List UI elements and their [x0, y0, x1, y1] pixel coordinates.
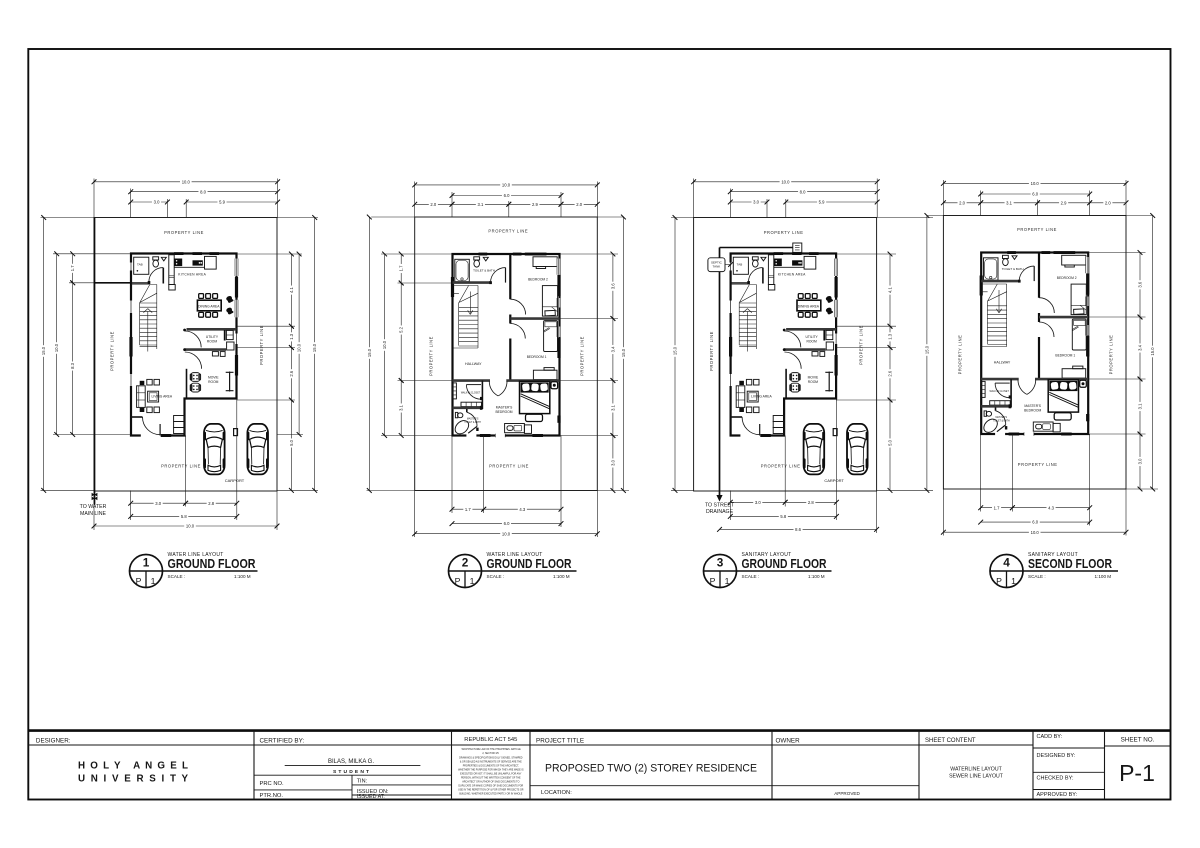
svg-text:PROPOSED TWO (2) STOREY RESIDE: PROPOSED TWO (2) STOREY RESIDENCE [545, 763, 757, 775]
svg-text:TO STREET: TO STREET [705, 502, 735, 508]
svg-text:8.6: 8.6 [795, 527, 801, 532]
svg-text:CERTIFIED BY:: CERTIFIED BY: [260, 737, 305, 744]
svg-text:6.0: 6.0 [1032, 520, 1038, 525]
svg-text:2.9: 2.9 [532, 202, 538, 207]
svg-text:1.7: 1.7 [994, 505, 1000, 510]
svg-text:SECOND FLOOR: SECOND FLOOR [1028, 557, 1112, 571]
svg-text:2, SECTION 25:: 2, SECTION 25: [482, 753, 499, 755]
svg-text:& OR SEALED AS INSTRUMENTS OF: & OR SEALED AS INSTRUMENTS OF SERVICE AR… [460, 760, 522, 763]
svg-text:ISSUED AT:: ISSUED AT: [357, 794, 385, 800]
svg-text:PERSON, WITHOUT THE WRITTEN CO: PERSON, WITHOUT THE WRITTEN CONSENT OF T… [461, 778, 521, 780]
svg-text:2.9: 2.9 [1061, 200, 1067, 205]
svg-text:CHECKED BY:: CHECKED BY: [1037, 775, 1074, 781]
svg-text:WATERLINE LAYOUT: WATERLINE LAYOUT [950, 766, 1002, 772]
svg-text:3.6: 3.6 [610, 283, 615, 289]
svg-text:15.0: 15.0 [621, 348, 626, 357]
svg-text:REPUBLIC ACT 545: REPUBLIC ACT 545 [464, 737, 517, 743]
svg-text:8.3: 8.3 [70, 362, 75, 368]
svg-text:2.0: 2.0 [1105, 200, 1111, 205]
svg-text:OWNER: OWNER [776, 737, 801, 744]
svg-text:5.8: 5.8 [181, 514, 187, 519]
svg-text:8.0: 8.0 [800, 189, 806, 194]
svg-text:15.0: 15.0 [41, 346, 46, 355]
svg-text:TO WATER: TO WATER [80, 504, 107, 510]
svg-text:4.1: 4.1 [289, 287, 294, 293]
svg-text:3.0: 3.0 [1138, 458, 1143, 464]
svg-text:5.8: 5.8 [780, 514, 786, 519]
svg-text:15.0: 15.0 [1150, 347, 1155, 356]
svg-text:1.3: 1.3 [289, 333, 294, 339]
svg-text:5.9: 5.9 [819, 200, 825, 205]
svg-text:4.1: 4.1 [888, 287, 893, 293]
svg-text:15.0: 15.0 [312, 343, 317, 352]
svg-text:WHETHER THE PURPOSE FOR WHICH: WHETHER THE PURPOSE FOR WHICH THEY ARE M… [458, 768, 524, 771]
svg-text:8.0: 8.0 [200, 189, 206, 194]
svg-text:6.0: 6.0 [1032, 192, 1038, 197]
svg-text:5.9: 5.9 [219, 200, 225, 205]
svg-text:3.1: 3.1 [399, 404, 404, 410]
svg-text:5.2: 5.2 [399, 326, 404, 332]
svg-text:BILAS, MILKA G.: BILAS, MILKA G. [328, 759, 374, 765]
svg-text:3: 3 [717, 556, 724, 570]
svg-text:4.3: 4.3 [1048, 505, 1054, 510]
svg-text:DESIGNED BY:: DESIGNED BY: [1037, 753, 1076, 759]
svg-text:SHEET NO.: SHEET NO. [1121, 737, 1155, 744]
svg-text:BUILDING, WHETHER EXECUTED PAR: BUILDING, WHETHER EXECUTED PARTLY OR IN … [459, 793, 522, 796]
svg-text:PROJECT TITLE: PROJECT TITLE [536, 737, 584, 744]
svg-text:15.0: 15.0 [673, 346, 678, 355]
svg-text:15.0: 15.0 [367, 348, 372, 357]
svg-text:4: 4 [1003, 556, 1010, 570]
svg-text:3.1: 3.1 [1006, 200, 1012, 205]
svg-text:H O L Y A N G E L: H O L Y A N G E L [78, 761, 188, 772]
svg-text:1.7: 1.7 [70, 265, 75, 271]
svg-text:PTR.NO.: PTR.NO. [260, 793, 284, 799]
svg-text:DUPLICATE OR MAKE COPIES OF SA: DUPLICATE OR MAKE COPIES OF SAID DOCUMEN… [458, 785, 523, 788]
svg-text:3.0: 3.0 [755, 500, 761, 505]
svg-text:GROUND FLOOR: GROUND FLOOR [742, 557, 827, 571]
svg-text:GROUND FLOOR: GROUND FLOOR [487, 557, 572, 571]
svg-text:3.0: 3.0 [154, 200, 160, 205]
svg-text:10.0: 10.0 [781, 179, 790, 184]
svg-text:3.1: 3.1 [610, 404, 615, 410]
svg-text:DRAINAGE: DRAINAGE [706, 509, 734, 515]
svg-text:2.8: 2.8 [208, 501, 214, 506]
svg-text:6.0: 6.0 [504, 521, 510, 526]
svg-text:LOCATION:: LOCATION: [541, 790, 572, 796]
svg-text:MAIN LINE: MAIN LINE [80, 511, 106, 517]
svg-text:6.0: 6.0 [504, 193, 510, 198]
svg-text:3.6: 3.6 [1138, 281, 1143, 287]
svg-text:10.0: 10.0 [382, 340, 387, 349]
svg-text:SEWER LINE LAYOUT: SEWER LINE LAYOUT [949, 773, 1004, 779]
svg-text:2.6: 2.6 [289, 370, 294, 376]
svg-text:2.0: 2.0 [959, 200, 965, 205]
svg-text:PROPERTIES & DOCUMENTS OF THE: PROPERTIES & DOCUMENTS OF THE ARCHITECT, [463, 764, 520, 767]
svg-text:5.0: 5.0 [289, 439, 294, 445]
svg-text:DRAWINGS & SPECIFICATIONS DULY: DRAWINGS & SPECIFICATIONS DULY SIGNED, S… [459, 756, 523, 759]
svg-text:U N I V E R S I T Y: U N I V E R S I T Y [78, 773, 188, 784]
svg-text:10.0: 10.0 [502, 531, 511, 536]
svg-text:2.0: 2.0 [430, 202, 436, 207]
svg-text:1.7: 1.7 [399, 265, 404, 271]
svg-text:3.0: 3.0 [155, 501, 161, 506]
svg-text:TIN:: TIN: [357, 779, 368, 785]
svg-text:4.3: 4.3 [519, 507, 525, 512]
svg-text:ARCHITECT OR AUTHOR OF SAID DO: ARCHITECT OR AUTHOR OF SAID DOCUMENTS TO [462, 781, 519, 784]
svg-text:USE IN THE REPETITION OF & FOR: USE IN THE REPETITION OF & FOR OTHER PRO… [458, 790, 524, 792]
svg-text:10.0: 10.0 [186, 524, 195, 529]
svg-text:GROUND FLOOR: GROUND FLOOR [168, 557, 256, 571]
svg-text:DESIGNER:: DESIGNER: [36, 737, 71, 744]
svg-text:3.1: 3.1 [477, 202, 483, 207]
svg-text:2.0: 2.0 [576, 202, 582, 207]
svg-text:10.0: 10.0 [182, 179, 191, 184]
svg-text:"ARCHITECTURE LAW OF THE PHILI: "ARCHITECTURE LAW OF THE PHILIPPINES. AR… [461, 748, 521, 751]
svg-text:1: 1 [143, 556, 150, 570]
svg-text:APPROVED: APPROVED [834, 791, 860, 796]
svg-text:2.8: 2.8 [808, 500, 814, 505]
svg-text:10.0: 10.0 [1031, 181, 1040, 186]
svg-text:SHEET CONTENT: SHEET CONTENT [925, 738, 976, 744]
svg-text:1.7: 1.7 [465, 507, 471, 512]
svg-text:3.0: 3.0 [610, 459, 615, 465]
svg-text:P-1: P-1 [1119, 760, 1155, 786]
svg-text:10.0: 10.0 [1031, 530, 1040, 535]
svg-text:TANK: TANK [713, 265, 721, 269]
svg-text:S T U D E N T: S T U D E N T [333, 769, 369, 775]
svg-text:10.0: 10.0 [54, 343, 59, 352]
svg-text:3.1: 3.1 [1138, 403, 1143, 409]
svg-text:APPROVED BY:: APPROVED BY: [1037, 792, 1078, 798]
svg-text:PRC NO.: PRC NO. [260, 781, 285, 787]
svg-text:3.0: 3.0 [753, 200, 759, 205]
svg-text:1.3: 1.3 [888, 333, 893, 339]
svg-text:5.0: 5.0 [888, 439, 893, 445]
svg-text:10.0: 10.0 [297, 343, 302, 352]
svg-text:EXECUTED OR NOT. IT SHALL BE U: EXECUTED OR NOT. IT SHALL BE UNLAWFUL FO… [460, 773, 522, 776]
svg-text:3.4: 3.4 [1138, 344, 1143, 350]
svg-text:2.6: 2.6 [888, 370, 893, 376]
svg-text:10.0: 10.0 [502, 182, 511, 187]
svg-text:15.0: 15.0 [924, 345, 929, 354]
svg-text:CADD BY:: CADD BY: [1037, 734, 1063, 740]
svg-text:2: 2 [462, 556, 469, 570]
svg-text:3.4: 3.4 [610, 346, 615, 352]
